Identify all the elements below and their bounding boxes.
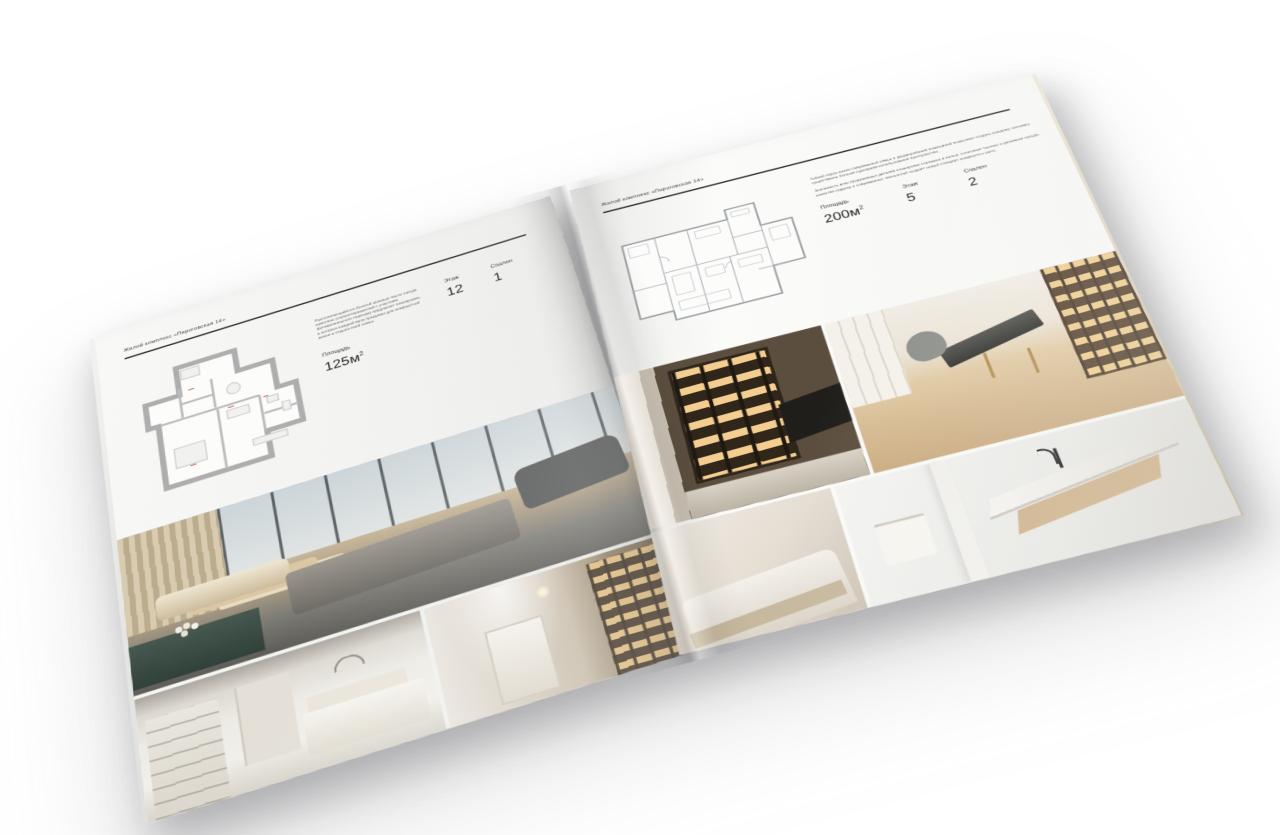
spec-area-right: Площадь 200м2 [820, 196, 867, 226]
page-right-topsection: Гибкий образ жизни современной семьи и ф… [607, 121, 1078, 343]
photo-backdrop: Жилой комплекс «Пироговская 14» [0, 0, 1280, 835]
page-left-text-column: Располагающийся в богатой зеленью части … [314, 284, 450, 443]
floorplan-right [607, 182, 826, 343]
open-brochure: Жилой комплекс «Пироговская 14» [106, 66, 1245, 807]
page-left-topsection: Располагающийся в богатой зеленью части … [127, 246, 581, 504]
spec-bedrooms-right-value: 2 [966, 172, 994, 190]
brochure-spread: Жилой комплекс «Пироговская 14» [106, 66, 1245, 807]
page-right: Жилой комплекс «Пироговская 14» [569, 73, 1241, 655]
spec-floor-left: Этаж 12 [443, 274, 493, 400]
page-right-content: Жилой комплекс «Пироговская 14» [569, 73, 1241, 655]
spec-floor-left-value: 12 [445, 282, 465, 299]
spec-bedrooms-right: Спален 2 [963, 164, 994, 190]
floorplan-left [127, 323, 318, 505]
spec-bedrooms-left-value: 1 [492, 266, 518, 285]
spec-floor-right-label: Этаж [902, 181, 919, 190]
spec-floor-right: Этаж 5 [902, 181, 925, 205]
spec-floor-right-value: 5 [905, 189, 925, 205]
spec-bedrooms-left: Спален 1 [490, 258, 549, 385]
